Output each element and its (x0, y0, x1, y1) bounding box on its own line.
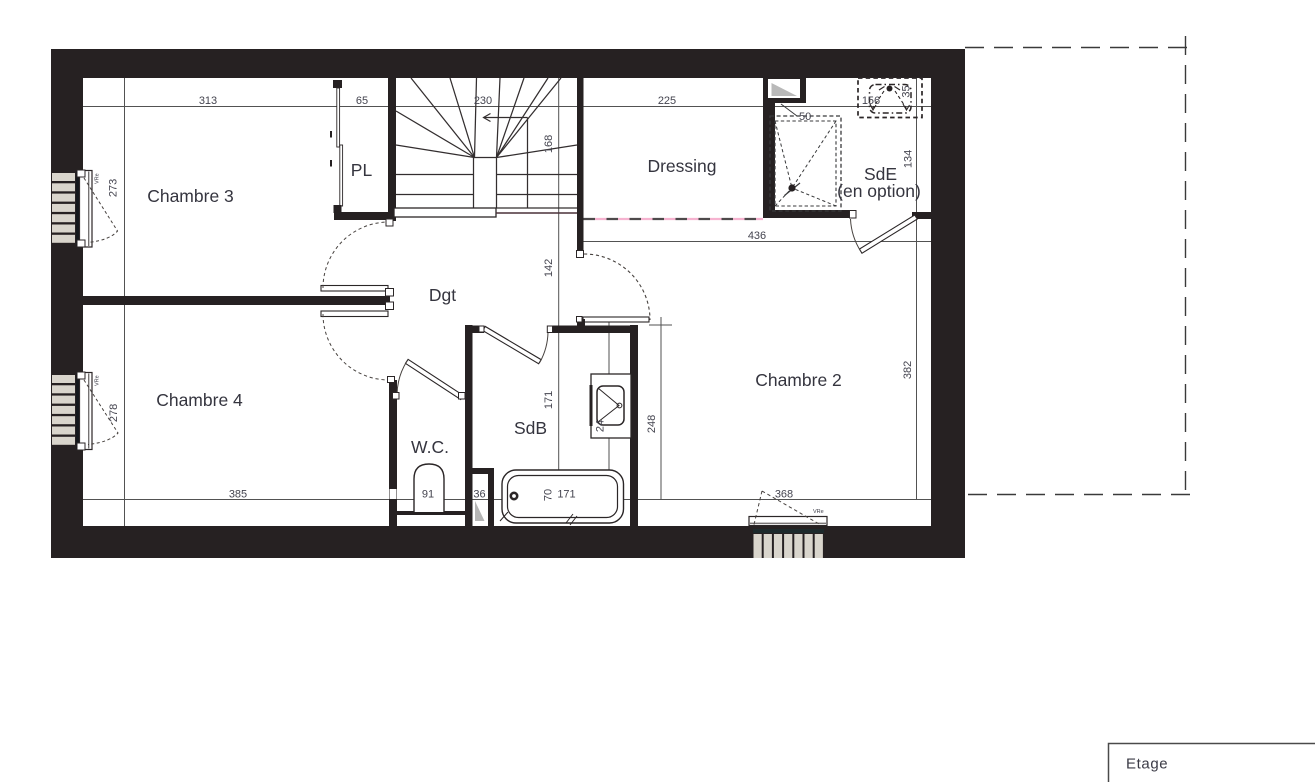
svg-text:171: 171 (543, 391, 555, 409)
svg-text:225: 225 (658, 95, 676, 107)
svg-text:65: 65 (356, 95, 368, 107)
svg-text:230: 230 (474, 95, 492, 107)
svg-text:24: 24 (595, 420, 607, 432)
svg-text:168: 168 (543, 135, 555, 153)
svg-text:248: 248 (646, 415, 658, 433)
svg-text:Chambre 4: Chambre 4 (156, 390, 243, 410)
svg-text:Dressing: Dressing (647, 156, 716, 176)
svg-text:VRe: VRe (95, 173, 101, 184)
svg-text:VRe: VRe (813, 509, 824, 515)
svg-text:Chambre 3: Chambre 3 (147, 186, 234, 206)
svg-text:W.C.: W.C. (411, 437, 449, 457)
svg-text:70: 70 (543, 489, 555, 501)
svg-text:156: 156 (862, 95, 880, 107)
svg-text:273: 273 (108, 179, 120, 197)
svg-text:35: 35 (901, 85, 913, 97)
svg-text:134: 134 (903, 150, 915, 168)
svg-text:(en option): (en option) (837, 181, 921, 201)
svg-text:91: 91 (422, 489, 434, 501)
svg-text:Etage: Etage (1126, 756, 1168, 773)
svg-text:PL: PL (351, 160, 373, 180)
svg-text:142: 142 (543, 259, 555, 277)
svg-text:VRe: VRe (95, 375, 101, 386)
svg-text:Dgt: Dgt (429, 285, 456, 305)
svg-text:36: 36 (473, 489, 485, 501)
svg-text:Chambre 2: Chambre 2 (755, 370, 842, 390)
svg-text:382: 382 (902, 361, 914, 379)
svg-text:278: 278 (108, 404, 120, 422)
svg-text:436: 436 (748, 230, 766, 242)
svg-text:SdB: SdB (514, 418, 547, 438)
svg-text:171: 171 (557, 489, 575, 501)
svg-text:313: 313 (199, 95, 217, 107)
svg-text:385: 385 (229, 489, 247, 501)
svg-text:50: 50 (799, 111, 811, 123)
svg-text:368: 368 (775, 489, 793, 501)
